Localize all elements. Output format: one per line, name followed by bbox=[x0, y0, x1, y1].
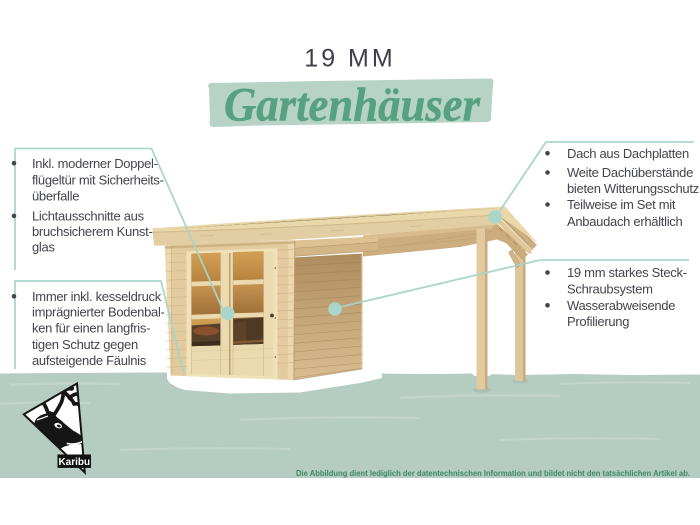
svg-text:glas: glas bbox=[32, 240, 55, 255]
svg-text:Teilweise im Set mit: Teilweise im Set mit bbox=[567, 197, 676, 212]
svg-text:tigen Schutz gegen: tigen Schutz gegen bbox=[32, 337, 138, 352]
svg-text:Dach aus Dachplatten: Dach aus Dachplatten bbox=[567, 146, 689, 161]
svg-text:Profilierung: Profilierung bbox=[567, 314, 629, 329]
svg-text:Schraubsystem: Schraubsystem bbox=[567, 281, 653, 296]
svg-text:überfalle: überfalle bbox=[32, 189, 79, 204]
svg-text:19 MM: 19 MM bbox=[304, 45, 395, 73]
svg-text:bruchsicherem Kunst-: bruchsicherem Kunst- bbox=[32, 224, 152, 239]
svg-text:Karibu: Karibu bbox=[58, 457, 90, 468]
svg-text:aufsteigende Fäulnis: aufsteigende Fäulnis bbox=[32, 353, 147, 368]
svg-text:Gartenhäuser: Gartenhäuser bbox=[224, 79, 481, 132]
svg-text:ken für einen langfris-: ken für einen langfris- bbox=[32, 321, 150, 336]
svg-text:flügeltür mit Sicherheits-: flügeltür mit Sicherheits- bbox=[32, 172, 164, 187]
svg-text:Lichtausschnitte aus: Lichtausschnitte aus bbox=[32, 209, 145, 224]
svg-text:Die Abbildung dient lediglich: Die Abbildung dient lediglich der datent… bbox=[296, 468, 690, 478]
svg-text:imprägnierter Bodenbal-: imprägnierter Bodenbal- bbox=[32, 305, 165, 320]
svg-text:bieten Witterungsschutz: bieten Witterungsschutz bbox=[567, 181, 699, 196]
svg-text:19 mm starkes Steck-: 19 mm starkes Steck- bbox=[567, 265, 687, 280]
svg-text:Immer inkl. kesseldruck: Immer inkl. kesseldruck bbox=[32, 289, 162, 304]
svg-text:Anbaudach erhältlich: Anbaudach erhältlich bbox=[567, 214, 682, 229]
svg-text:Weite Dachüberstände: Weite Dachüberstände bbox=[567, 165, 693, 180]
svg-text:Wasserabweisende: Wasserabweisende bbox=[567, 298, 675, 313]
svg-text:Inkl. moderner Doppel-: Inkl. moderner Doppel- bbox=[32, 156, 158, 171]
